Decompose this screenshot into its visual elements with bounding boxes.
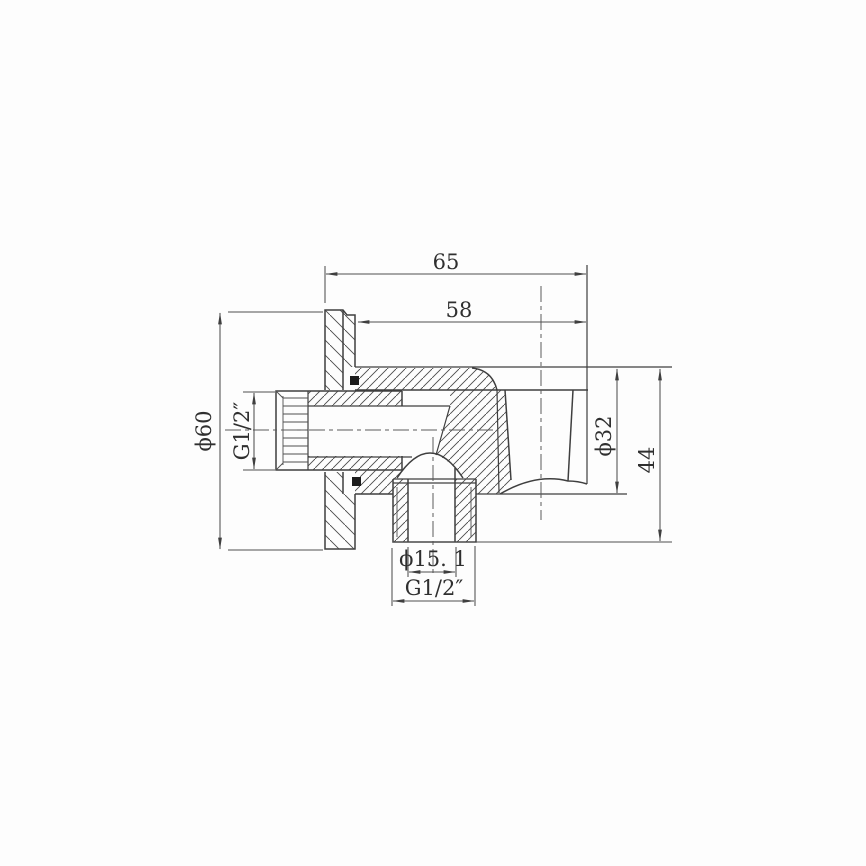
technical-drawing-page: 65 58 ϕ60 G1/2″ ϕ32 44 <box>0 0 866 866</box>
dim-holder-diameter-32: ϕ32 <box>592 369 617 493</box>
pipe-left-wall-hatch <box>393 479 408 542</box>
pipe-right-wall-hatch <box>455 479 476 542</box>
dim-g12l-label: G1/2″ <box>230 402 254 461</box>
o-ring-upper <box>350 376 359 385</box>
dim-65-label: 65 <box>433 250 460 274</box>
dim-inlet-thread-g12: G1/2″ <box>230 392 275 470</box>
dim-58-label: 58 <box>446 298 473 322</box>
dim-body-depth-58: 58 <box>358 298 586 322</box>
dim-overall-depth-65: 65 <box>325 250 586 303</box>
cup-bottom-curve <box>500 479 587 494</box>
socket-bottom-wall-hatch <box>308 456 402 470</box>
flange-lower-section-hatch <box>325 472 355 549</box>
holder-cup <box>500 265 587 494</box>
dim-151-label: ϕ15. 1 <box>399 547 467 571</box>
dim-flange-diameter-60: ϕ60 <box>192 312 323 550</box>
dim-outlet-bore-151: ϕ15. 1 <box>399 547 467 577</box>
socket-top-wall-hatch <box>308 391 402 406</box>
dim-overall-height-44: 44 <box>393 369 672 542</box>
dim-32-label: ϕ32 <box>592 415 616 456</box>
body-top-wall-hatch <box>355 368 497 390</box>
outlet-pipe <box>393 468 476 542</box>
dim-44-label: 44 <box>635 447 659 474</box>
dimensions: 65 58 ϕ60 G1/2″ ϕ32 44 <box>192 250 672 606</box>
cup-inner-cone-right <box>568 390 573 481</box>
dim-g12b-label: G1/2″ <box>405 576 464 600</box>
shower-bracket-drawing: 65 58 ϕ60 G1/2″ ϕ32 44 <box>0 0 866 866</box>
dim-60-label: ϕ60 <box>192 410 216 451</box>
o-ring-lower <box>352 477 361 486</box>
